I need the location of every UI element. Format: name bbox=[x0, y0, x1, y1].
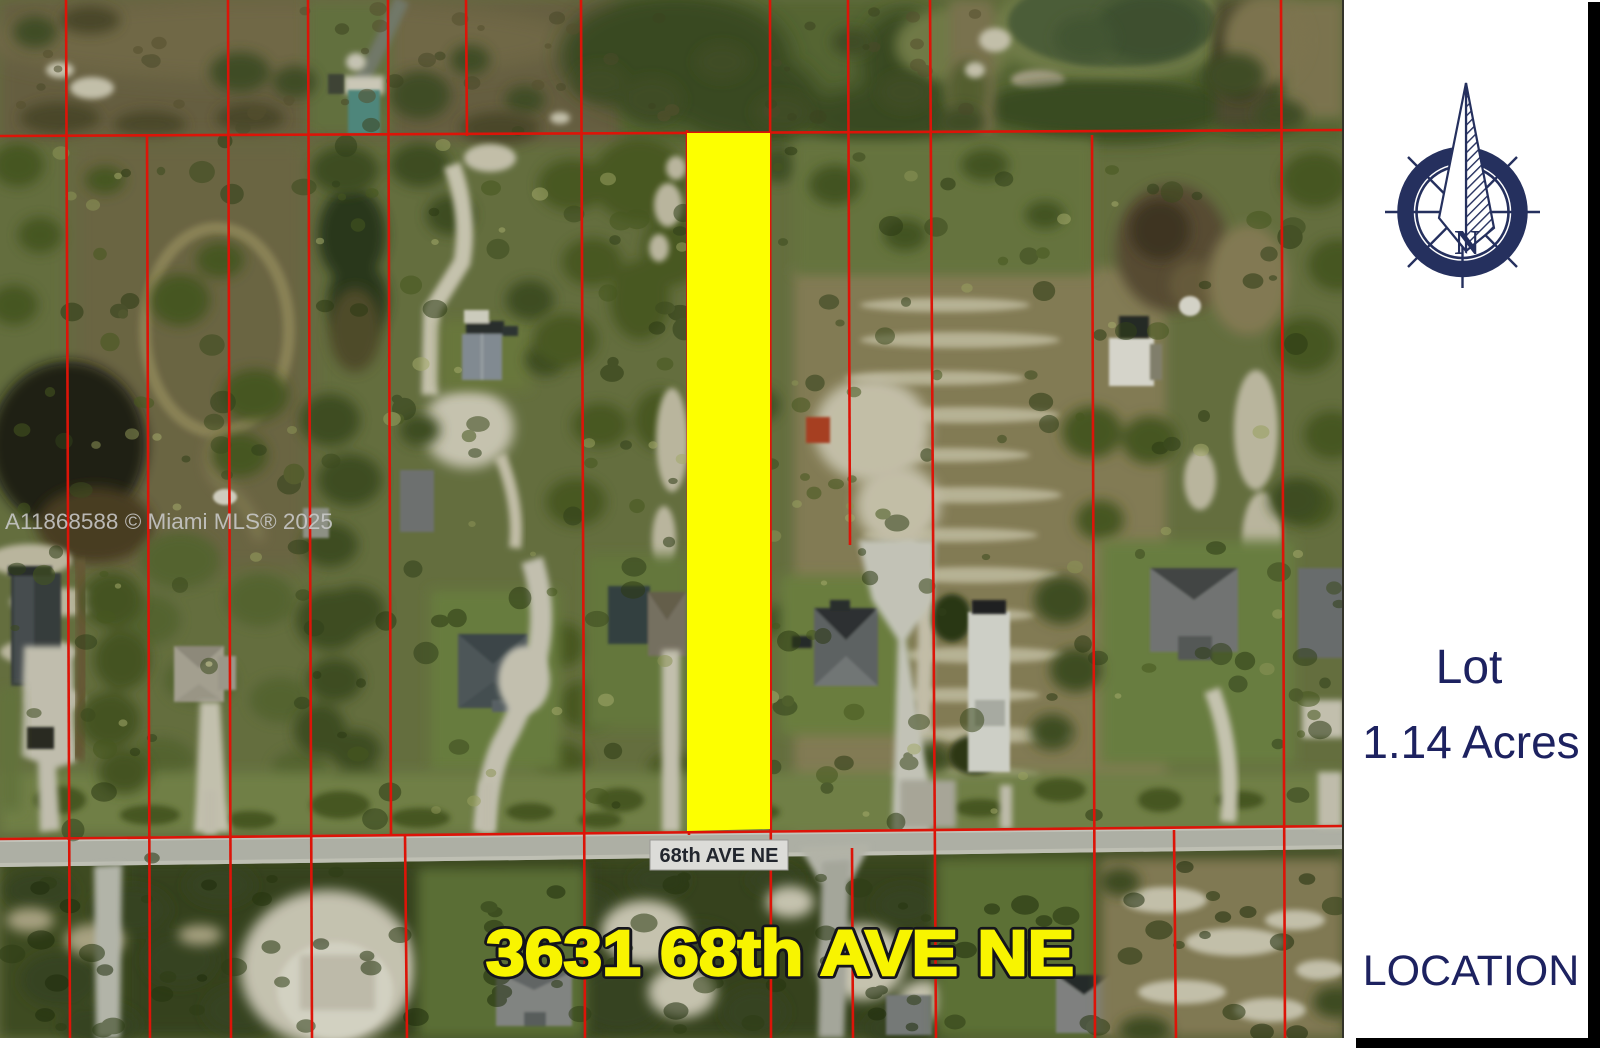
svg-text:N: N bbox=[1454, 223, 1479, 262]
svg-text:A11868588 © Miami MLS® 2025: A11868588 © Miami MLS® 2025 bbox=[5, 509, 333, 534]
svg-text:3631 68th AVE NE: 3631 68th AVE NE bbox=[486, 917, 1074, 989]
svg-text:68th AVE NE: 68th AVE NE bbox=[660, 845, 779, 867]
